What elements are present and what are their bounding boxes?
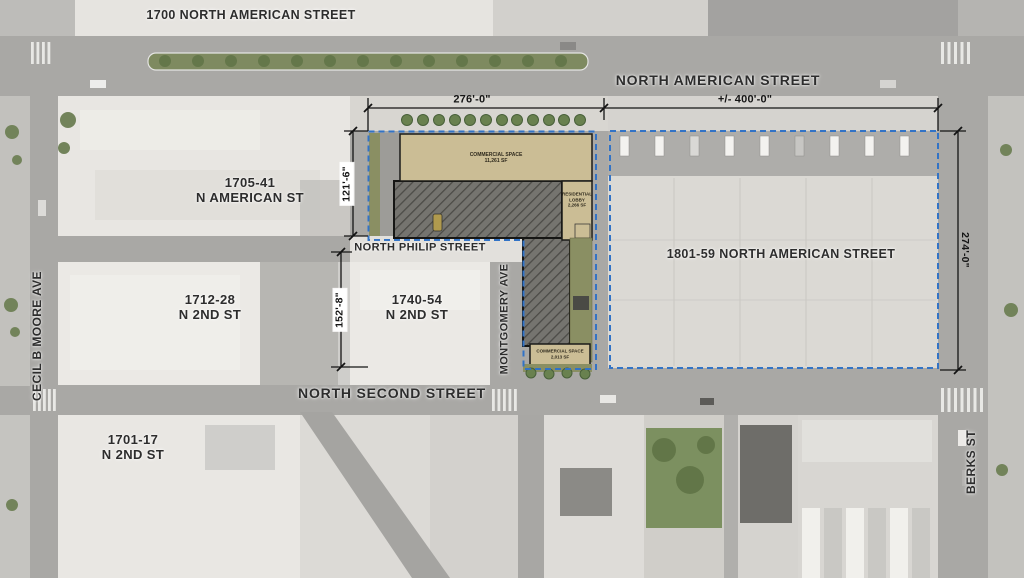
street-label-north-second: NORTH SECOND STREET xyxy=(298,385,486,401)
dim-label-site-width: 276'-0" xyxy=(453,94,490,107)
street-label-north-philip: NORTH PHILIP STREET xyxy=(354,242,485,255)
building-footprint-hatched-south xyxy=(523,238,570,346)
parcel-label-1740-54: 1740-54 N 2ND ST xyxy=(386,293,448,323)
city-blocks xyxy=(0,0,1024,578)
space-label-commercial-north: COMMERCIAL SPACE 11,261 SF xyxy=(470,152,523,165)
car-in-driveway xyxy=(433,214,442,231)
dim-label-parcel-width: +/- 400'-0" xyxy=(718,94,772,107)
space-label-commercial-south: COMMERCIAL SPACE 2,013 SF xyxy=(536,348,583,359)
dim-label-site-depth-north: 121'-6" xyxy=(340,163,353,205)
planting-strip-west xyxy=(369,133,380,236)
parcel-label-1712-28: 1712-28 N 2ND ST xyxy=(179,293,241,323)
median-strip xyxy=(148,53,588,70)
parcel-label-1700: 1700 NORTH AMERICAN STREET xyxy=(146,8,355,22)
street-label-berks: BERKS ST xyxy=(965,430,979,494)
parcel-label-1705-41: 1705-41 N AMERICAN ST xyxy=(196,176,304,206)
street-label-montgomery: MONTGOMERY AVE xyxy=(499,264,512,375)
site-plan-map: 1700 NORTH AMERICAN STREET NORTH AMERICA… xyxy=(0,0,1024,578)
street-label-cecil-b-moore: CECIL B MOORE AVE xyxy=(31,271,45,401)
residential-lobby xyxy=(562,181,592,240)
parcel-label-1801-59: 1801-59 NORTH AMERICAN STREET xyxy=(667,247,896,261)
building-footprint-hatched-north xyxy=(394,181,562,238)
street-label-north-american: NORTH AMERICAN STREET xyxy=(616,72,821,88)
space-label-residential-lobby: RESIDENTIAL LOBBY 2,266 SF xyxy=(562,192,592,209)
dim-label-site-depth-south: 152'-8" xyxy=(333,289,346,331)
parcel-label-1701-17: 1701-17 N 2ND ST xyxy=(102,433,164,463)
dim-label-parcel-depth-east: 274'-0" xyxy=(959,232,971,268)
aerial-basemap xyxy=(0,0,1024,578)
